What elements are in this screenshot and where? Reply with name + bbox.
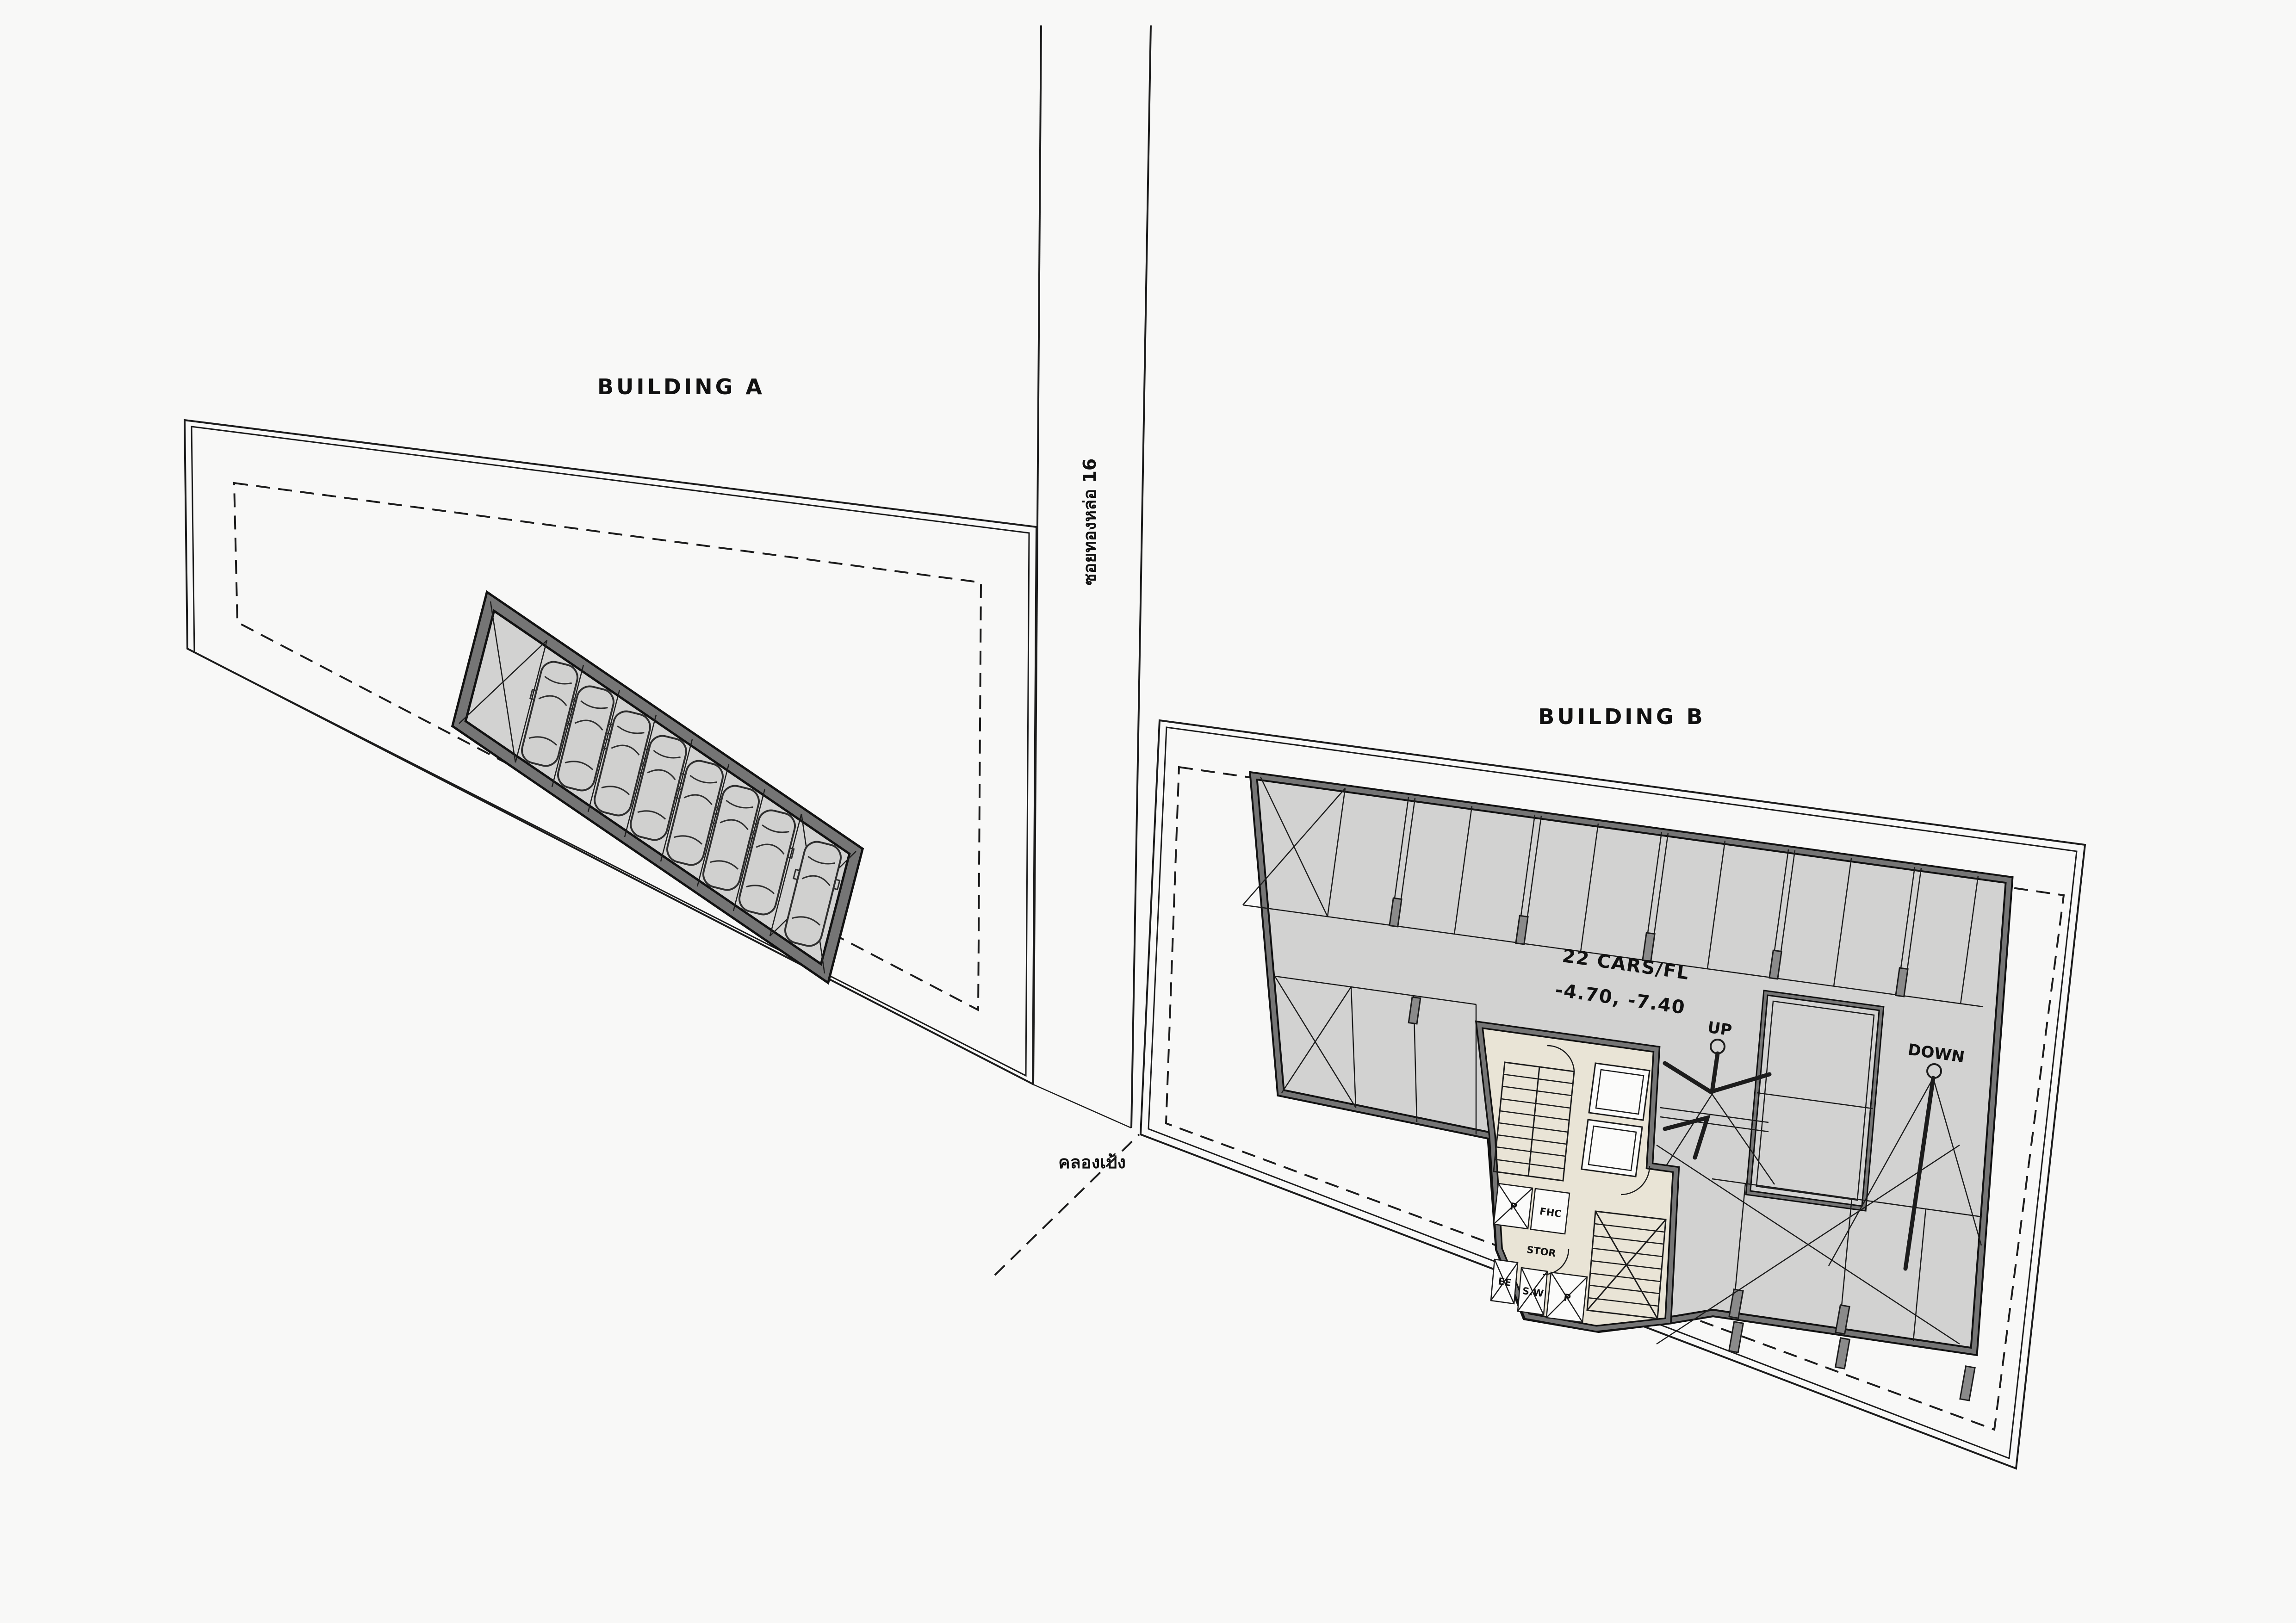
road-soi-label: ซอยทองหล่อ 16	[1080, 458, 1100, 586]
road-soi: ซอยทองหล่อ 16	[1033, 25, 1151, 1128]
column	[1836, 1338, 1850, 1369]
site-plan-sheet: ซอยทองหล่อ 16 คลองเป้ง BUILDING A	[0, 0, 2296, 1623]
shaft-sw: S.W	[1518, 1268, 1547, 1315]
ramp-up-label: UP	[1706, 1018, 1733, 1040]
column	[1960, 1366, 1975, 1400]
building-b-plate: 22 CARS/FL -4.70, -7.40	[1243, 776, 2009, 1400]
building-a-title: BUILDING A	[597, 374, 765, 399]
canal: คลองเป้ง	[1033, 1084, 1131, 1172]
shaft-p: P	[1494, 1183, 1533, 1229]
shaft-ee: EE	[1491, 1259, 1518, 1304]
column	[1729, 1322, 1744, 1353]
building-b-title: BUILDING B	[1538, 704, 1705, 729]
shaft-p2: P	[1546, 1272, 1587, 1322]
site-plan-drawing: ซอยทองหล่อ 16 คลองเป้ง BUILDING A	[0, 0, 2296, 1623]
building-b-core: P FHC STOR EE S.W	[1479, 1025, 1676, 1329]
svg-text:EE: EE	[1497, 1276, 1512, 1288]
room-fhc: FHC	[1531, 1189, 1570, 1234]
canal-label: คลองเป้ง	[1058, 1152, 1126, 1172]
building-a-structure	[459, 601, 856, 973]
